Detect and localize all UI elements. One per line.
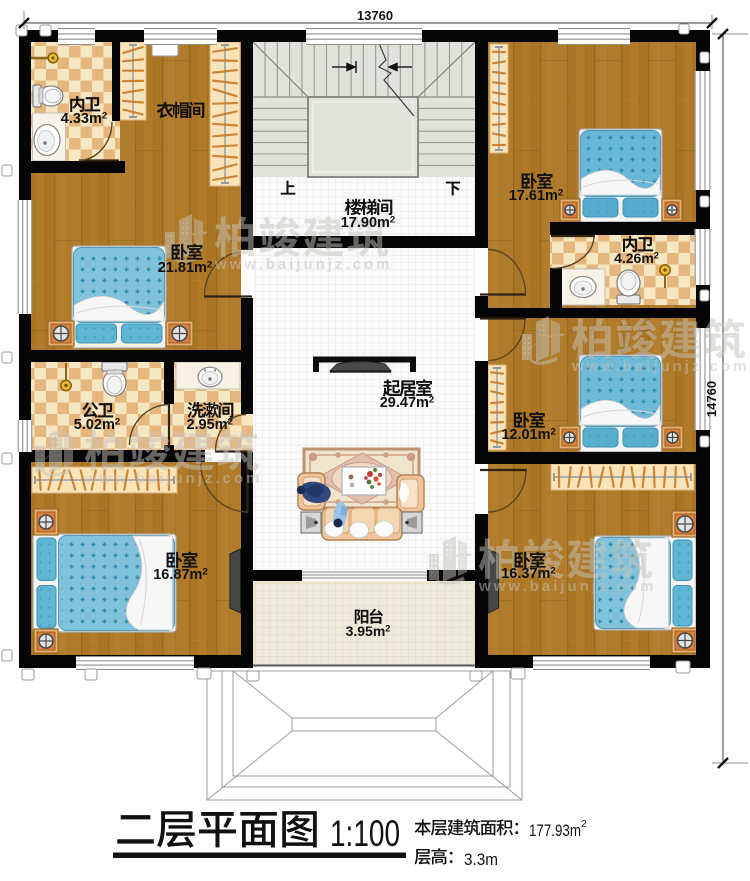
svg-text:177.93m: 177.93m (529, 822, 581, 840)
svg-text:4.26m2: 4.26m2 (614, 250, 659, 266)
svg-text:17.61m2: 17.61m2 (509, 188, 564, 205)
svg-text:13760: 13760 (357, 8, 393, 23)
svg-text:5.02m2: 5.02m2 (74, 417, 120, 434)
svg-text:www.baijunjz.com: www.baijunjz.com (571, 358, 749, 375)
svg-text:21.81m2: 21.81m2 (158, 260, 213, 277)
svg-text:14760: 14760 (704, 381, 719, 417)
svg-text:3.95m2: 3.95m2 (346, 623, 391, 639)
svg-text:17.90m2: 17.90m2 (341, 215, 396, 232)
svg-text:4.33m2: 4.33m2 (61, 111, 107, 128)
svg-text:1:100: 1:100 (330, 813, 400, 854)
svg-text:2: 2 (581, 818, 587, 830)
svg-text:www.baijunjz.com: www.baijunjz.com (84, 470, 262, 487)
svg-text:3.3m: 3.3m (464, 851, 498, 869)
svg-text:www.baijunjz.com: www.baijunjz.com (214, 256, 392, 273)
svg-text:29.47m2: 29.47m2 (380, 395, 435, 412)
svg-text:2.95m2: 2.95m2 (186, 417, 232, 434)
svg-text:12.01m2: 12.01m2 (501, 426, 556, 443)
svg-text:16.37m2: 16.37m2 (501, 566, 556, 583)
svg-text:16.87m2: 16.87m2 (153, 567, 208, 584)
